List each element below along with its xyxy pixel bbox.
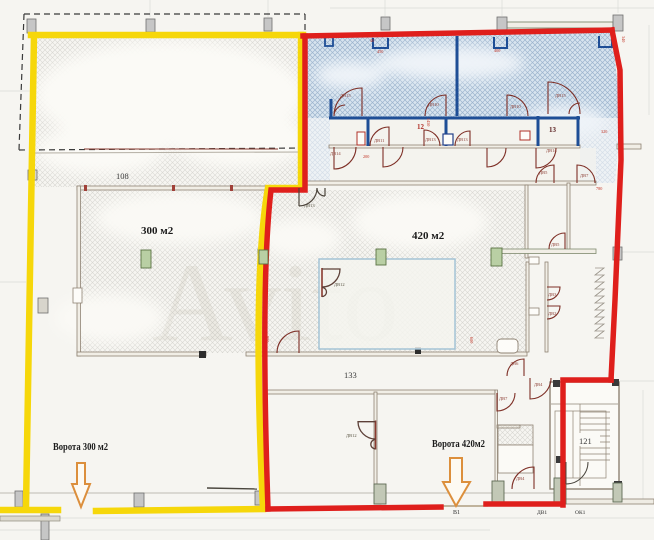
svg-text:13: 13: [549, 126, 557, 134]
svg-text:1450: 1450: [426, 118, 431, 126]
svg-text:ДВ13: ДВ13: [425, 137, 436, 142]
svg-text:ДВ5: ДВ5: [539, 170, 548, 175]
svg-text:ДВ13: ДВ13: [304, 203, 315, 208]
svg-text:780: 780: [596, 186, 602, 191]
svg-text:ДВ15: ДВ15: [340, 93, 351, 98]
svg-text:Ворота 300 м2: Ворота 300 м2: [53, 441, 108, 453]
svg-text:ДВ10: ДВ10: [510, 104, 521, 109]
svg-text:ДВ13: ДВ13: [457, 137, 468, 142]
svg-text:108: 108: [116, 171, 129, 181]
svg-text:300 м2: 300 м2: [141, 225, 174, 237]
svg-text:ДВ5: ДВ5: [551, 242, 560, 247]
svg-text:ДВ10: ДВ10: [428, 102, 439, 107]
svg-text:133: 133: [344, 370, 357, 380]
svg-text:ДВ1: ДВ1: [537, 510, 547, 516]
svg-text:ДВ12: ДВ12: [346, 433, 357, 438]
svg-text:В1: В1: [453, 510, 460, 516]
svg-text:ДВ6: ДВ6: [510, 361, 519, 366]
svg-text:ДВ2: ДВ2: [548, 311, 556, 316]
svg-text:340: 340: [621, 36, 626, 42]
svg-text:ДВ14: ДВ14: [546, 148, 557, 153]
svg-text:ДВ4: ДВ4: [534, 382, 543, 387]
svg-text:ДВ7: ДВ7: [499, 396, 508, 401]
svg-text:121: 121: [579, 436, 592, 446]
svg-text:ДВ7: ДВ7: [580, 173, 589, 178]
svg-text:450: 450: [377, 49, 383, 54]
svg-text:200: 200: [363, 154, 369, 159]
svg-text:420 м2: 420 м2: [412, 230, 445, 242]
svg-text:ДВ11: ДВ11: [374, 138, 384, 143]
svg-text:600: 600: [469, 337, 474, 343]
svg-text:ДВ12: ДВ12: [334, 282, 345, 287]
svg-text:400: 400: [494, 48, 500, 53]
svg-text:Ворота 420м2: Ворота 420м2: [432, 438, 485, 450]
svg-text:ДВ14: ДВ14: [330, 151, 341, 156]
svg-text:ОК1: ОК1: [575, 510, 586, 516]
svg-text:40: 40: [370, 38, 374, 43]
svg-text:ДВ4: ДВ4: [516, 476, 525, 481]
svg-text:ДВ15: ДВ15: [555, 93, 566, 98]
svg-text:12: 12: [417, 123, 425, 131]
svg-text:320: 320: [601, 129, 607, 134]
svg-text:ДВ3: ДВ3: [548, 292, 557, 297]
